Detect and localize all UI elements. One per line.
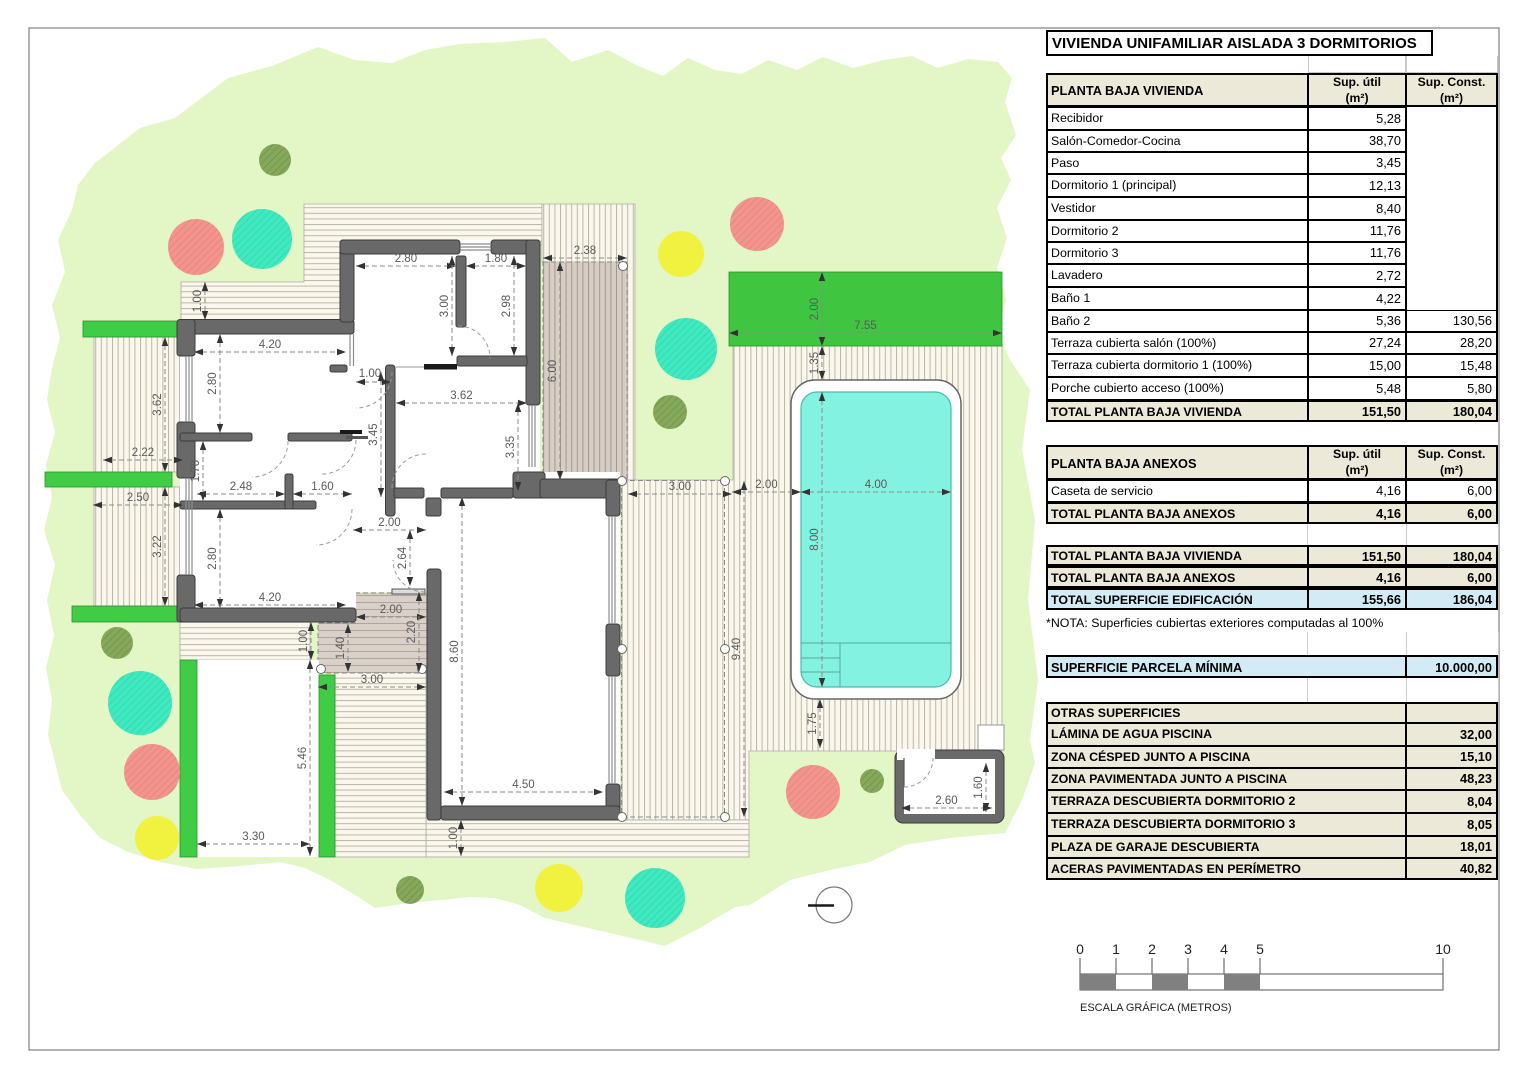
svg-text:3.35: 3.35	[505, 436, 517, 458]
svg-text:8.00: 8.00	[809, 528, 821, 550]
svg-text:3.00: 3.00	[669, 481, 691, 493]
svg-text:2.22: 2.22	[132, 447, 154, 459]
svg-text:2.20: 2.20	[406, 621, 418, 643]
svg-text:1.80: 1.80	[485, 253, 507, 265]
svg-text:2.80: 2.80	[207, 372, 219, 394]
svg-text:6.00: 6.00	[547, 360, 559, 382]
svg-text:8.60: 8.60	[449, 640, 461, 662]
svg-text:1.40: 1.40	[335, 637, 347, 659]
svg-text:1.60: 1.60	[311, 481, 333, 493]
svg-text:4.00: 4.00	[865, 479, 887, 491]
svg-text:5.46: 5.46	[297, 747, 309, 769]
svg-text:1.00: 1.00	[359, 368, 381, 380]
svg-text:3.00: 3.00	[361, 674, 383, 686]
svg-text:1: 1	[1112, 941, 1120, 957]
svg-text:2.48: 2.48	[230, 481, 252, 493]
svg-text:2.50: 2.50	[127, 492, 149, 504]
svg-text:1.75: 1.75	[807, 712, 819, 734]
svg-text:4: 4	[1220, 941, 1228, 957]
svg-text:2: 2	[1148, 941, 1156, 957]
svg-text:4.20: 4.20	[259, 339, 281, 351]
svg-text:5: 5	[1256, 941, 1264, 957]
svg-text:10: 10	[1435, 941, 1451, 957]
svg-text:1.70: 1.70	[190, 460, 202, 482]
svg-text:1.60: 1.60	[973, 776, 985, 798]
svg-text:7.55: 7.55	[854, 320, 876, 332]
svg-text:3.22: 3.22	[152, 535, 164, 557]
svg-text:1.00: 1.00	[192, 290, 204, 312]
svg-text:9.40: 9.40	[731, 638, 743, 660]
svg-text:3: 3	[1184, 941, 1192, 957]
svg-text:3.30: 3.30	[242, 831, 264, 843]
svg-text:2.00: 2.00	[809, 298, 821, 320]
svg-text:1.00: 1.00	[448, 827, 460, 849]
svg-text:1.00: 1.00	[298, 630, 310, 652]
svg-text:3.62: 3.62	[152, 393, 164, 415]
svg-text:3.00: 3.00	[439, 295, 451, 317]
svg-text:4.50: 4.50	[512, 779, 534, 791]
svg-text:2.80: 2.80	[207, 547, 219, 569]
svg-text:2.38: 2.38	[574, 245, 596, 257]
svg-text:1.35: 1.35	[809, 352, 821, 374]
svg-text:2.00: 2.00	[378, 517, 400, 529]
svg-text:2.64: 2.64	[397, 546, 409, 569]
svg-text:4.20: 4.20	[259, 592, 281, 604]
svg-text:2.00: 2.00	[380, 604, 402, 616]
svg-text:3.45: 3.45	[368, 423, 380, 445]
svg-text:2.98: 2.98	[501, 295, 513, 317]
svg-text:ESCALA GRÁFICA (METROS): ESCALA GRÁFICA (METROS)	[1080, 1001, 1232, 1014]
svg-text:2.80: 2.80	[395, 253, 417, 265]
svg-text:0: 0	[1076, 941, 1084, 957]
svg-text:3.62: 3.62	[450, 390, 472, 402]
svg-text:2.00: 2.00	[755, 479, 777, 491]
svg-text:2.60: 2.60	[935, 795, 957, 807]
